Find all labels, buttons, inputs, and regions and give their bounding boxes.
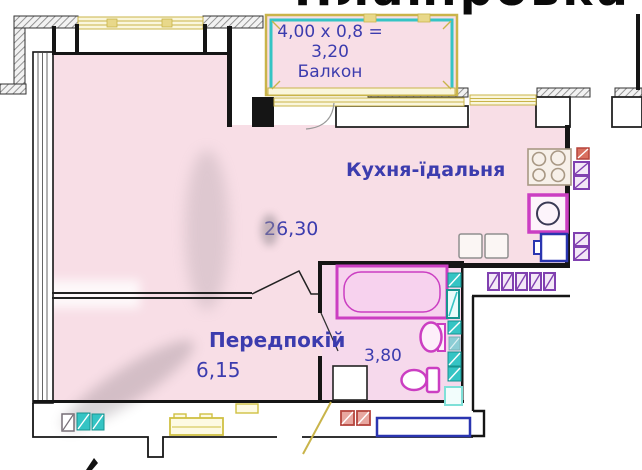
washing-machine-icon (333, 366, 367, 400)
floor-plan: Планіровка 4,00 x 0,8 = 3,20 Балкон Кухн… (0, 0, 642, 470)
balcony-name: Балкон (266, 64, 394, 82)
meter-icons (62, 413, 104, 431)
balcony-label-block: 4,00 x 0,8 = 3,20 Балкон (266, 24, 394, 84)
balcony-area: 3,20 (266, 44, 394, 62)
hallway-room-label: Передпокій (209, 330, 345, 351)
balcony-calc: 4,00 x 0,8 = (266, 24, 394, 42)
window-icon (78, 17, 203, 29)
watermark-smudge-over-area (261, 214, 278, 246)
bench-icon (170, 404, 258, 435)
page-title: Планіровка (288, 0, 642, 15)
kitchen-window-icon (470, 95, 536, 105)
kitchen-room-label: Кухня-їдальня (346, 161, 505, 181)
kitchen-sink-icon (529, 195, 567, 232)
bathtub-icon (337, 266, 447, 318)
bathroom-room-area: 3,80 (364, 348, 402, 366)
washbasin-icon (421, 323, 446, 352)
toilet-icon (402, 368, 440, 392)
entry-door-swing-icon (303, 402, 470, 454)
stove-icon (528, 149, 571, 185)
hallway-room-area: 6,15 (196, 360, 241, 381)
cropped-glyph (86, 458, 98, 470)
